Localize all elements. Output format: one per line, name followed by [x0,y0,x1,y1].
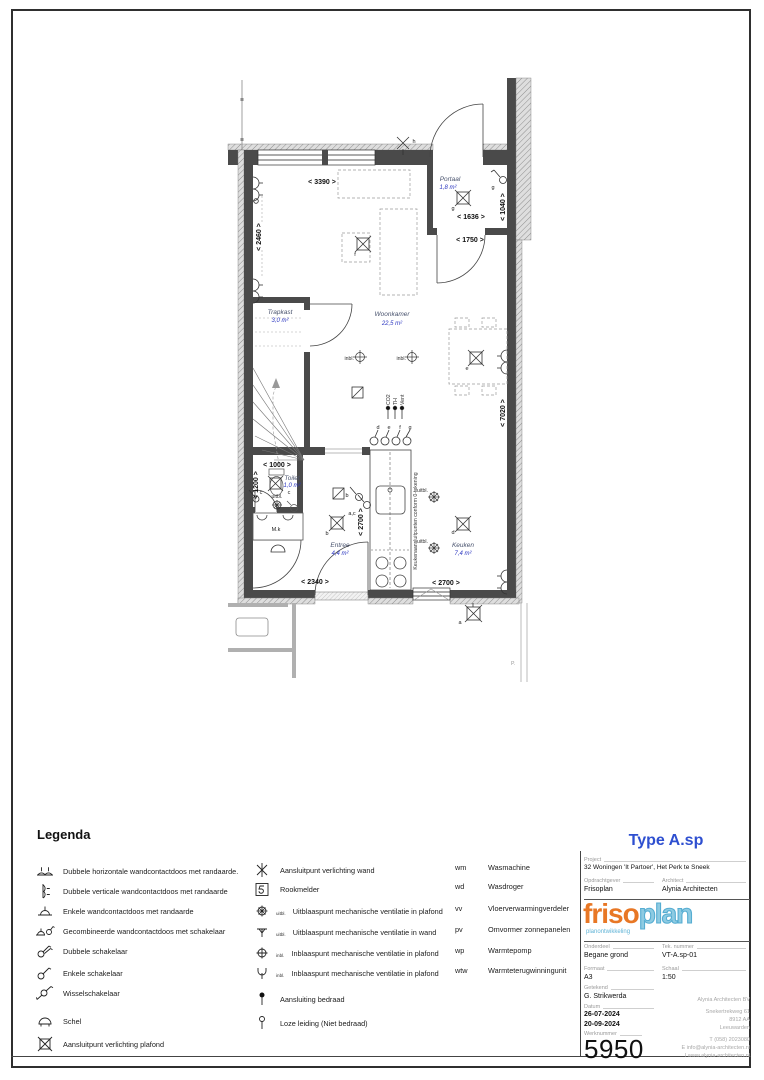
chair [455,386,469,395]
legend-row: wtwWarmteterugwinningunit [455,966,595,975]
dim-counter-h: < 2700 > [358,508,365,536]
room-area-keuken: 7,4 m² [454,551,472,557]
chair [482,318,496,327]
letter-g: g [491,185,494,191]
uitbl-icon [428,491,440,503]
schaal-value: 1:50 [662,974,676,981]
wall-light-icon [251,862,273,878]
label-co2: CO2 [386,394,392,405]
teknr-value: VT-A.sp-01 [662,952,697,959]
chair [482,386,496,395]
logo-tagline: planontwikkeling [586,929,630,935]
letter-e: e [387,425,390,431]
frisoplan-logo: frisoplan [583,900,692,928]
datum-value-1: 26-07-2024 [584,1011,620,1018]
room-name-entree: Entree [330,542,350,549]
legend-row: Enkele wandcontactdoos met randaarde [34,903,248,919]
room-area-toilet: 1,0 m² [283,483,301,489]
double-switch-icon [34,943,56,959]
label-vent: Vent [400,394,406,405]
label-uitbl: uitbl. [272,494,283,500]
letter-b: b [325,531,328,537]
inblaaspunt-plafond-icon [251,945,273,961]
double-vertical-socket-icon [34,883,56,899]
stairs [253,318,304,464]
drawing-sheet: Portaal 1,8 m² Woonkamer 22,5 m² Trapkas… [0,0,764,1080]
single-switch-icon [34,965,56,981]
architect-label: Architect [662,878,748,884]
legend-row: Schel [34,1013,248,1029]
client-value: Frisoplan [584,886,613,893]
exterior-walls [228,78,531,682]
schaal-label: Schaal [662,966,748,972]
room-name-toilet: Toilet [284,475,300,482]
dim-portaal-w: < 1636 > [457,214,485,221]
room-area-trapkast: 3,0 m² [271,318,289,324]
light-a-exterior-icon [465,603,482,622]
legend-row: wmWasmachine [455,863,595,872]
light-b-icon [329,515,345,531]
address-street: Snekertrekweg 61 [640,1009,750,1017]
legend-row: Aansluitpunt verlichting plafond [34,1036,248,1052]
legend-row: Wisselschakelaar [34,985,248,1001]
room-area-portaal: 1,8 m² [439,185,457,191]
legend-row: inbl. Inblaaspunt mechanische ventilatie… [251,945,451,961]
letter-d: d [451,530,454,536]
double-horizontal-socket-icon [34,863,56,879]
letter-g: g [451,206,454,212]
datum-value-2: 20-09-2024 [584,1021,620,1028]
loze-leiding-row [370,430,411,445]
legend-row: Gecombineerde wandcontactdoos met schake… [34,923,248,939]
formaat-label: Formaat [584,966,656,972]
dim-woonkamer-window-h: < 2460 > [256,223,263,251]
legend-row: Dubbele schakelaar [34,943,248,959]
inblaaspunt-wtw-icon [251,965,273,981]
legend-row: Dubbele verticale wandcontactdoos met ra… [34,883,248,899]
room-name-woonkamer: Woonkamer [374,311,410,318]
light-f-icon [355,236,371,252]
doorbell-icon [271,545,285,552]
label-inbl: inbl. [396,356,406,362]
titleblock-divider [580,851,581,1057]
thermostat-icon [352,387,363,398]
legend-row: Dubbele horizontale wandcontactdoos met … [34,863,248,879]
letter-ac: a,c [348,511,356,517]
room-name-keuken: Keuken [452,542,474,549]
legend-row: wdWasdroger [455,882,595,891]
formaat-value: A3 [584,974,593,981]
letter-f: f [399,425,401,431]
address-city: Leeuwarden [640,1025,750,1033]
legend-row: Aansluitpunt verlichting wand [251,862,451,878]
titleblock-rule [584,941,750,942]
corner-mark: P. [511,661,515,667]
dim-entree-w: < 2340 > [301,579,329,586]
address-email: E info@alynia-architecten.nl [640,1045,750,1053]
socket-icon [253,177,263,201]
address-zip: 8912 AA [640,1017,750,1025]
dim-depth: < 7020 > [500,399,507,427]
label-inbl: inbl. [344,356,354,362]
light-c-icon [268,476,283,491]
thermostat-icon [333,488,344,499]
kitchen-counter [370,450,411,590]
two-way-switch-icon [34,985,56,1001]
letter-e: e [465,366,468,372]
address-name: Alynia Architecten BV [640,997,750,1005]
dim-keuken-w: < 2700 > [432,580,460,587]
wired-point-icon [251,991,273,1007]
label-uitbl: uitbl. [417,488,428,494]
letter-c: c [260,490,263,496]
neighbor-outline [228,603,296,678]
legend-row: Loze leiding (Niet bedraad) [251,1015,451,1031]
address-phone: T (058) 2023080 [640,1037,750,1045]
dim-woonkamer-w: < 3390 > [308,179,336,186]
sofa-top [338,170,410,198]
address-web: I www.alynia-architecten.nl [640,1053,750,1061]
legend-row: Enkele schakelaar [34,965,248,981]
light-e-icon [468,350,484,366]
logo-plan: plan [639,898,693,929]
onderdeel-label: Onderdeel [584,944,656,950]
ceiling-light-icon [34,1036,56,1052]
letter-a: a [458,620,462,626]
kitchen-note: Keukenaansluitpunten conform 0-tekening [413,472,419,569]
uitbl-icon [428,542,440,554]
empty-conduit-icon [251,1015,273,1031]
logo-friso: friso [583,898,639,929]
legend-row: pvOmvormer zonnepanelen [455,925,595,934]
combined-socket-switch-icon [34,923,56,939]
legend-row: vvVloerverwarmingverdeler [455,904,595,913]
single-socket-icon [34,903,56,919]
werknummer-value: 5950 [584,1034,644,1065]
room-name-portaal: Portaal [440,176,461,183]
uitblaaspunt-plafond-icon [251,903,273,919]
bell-icon [34,1013,56,1029]
legend-row: Rookmelder [251,881,451,897]
legend-row: inbl. Inblaaspunt mechanische ventilatie… [251,965,451,981]
inbl-icon [405,350,419,364]
project-value: 32 Woningen 'It Partoer', Het Perk te Sn… [584,864,750,871]
drawing-type-title: Type A.sp [580,832,752,850]
uitblaaspunt-wand-icon [251,924,273,940]
legend-title: Legenda [37,827,90,842]
room-area-entree: 4,4 m² [331,551,349,557]
light-g-icon [455,190,471,206]
dim-hal-w: < 1750 > [456,237,484,244]
light-d-icon [455,516,471,532]
wc-tank [269,469,284,475]
socket-icon [497,350,507,374]
floor-plan: Portaal 1,8 m² Woonkamer 22,5 m² Trapkas… [0,0,764,700]
letter-c: c [288,490,291,496]
smoke-detector-icon [251,881,273,897]
dim-toilet-w: < 1000 > [263,462,291,469]
room-name-trapkast: Trapkast [268,309,294,316]
chair [455,318,469,327]
room-area-woonkamer: 22,5 m² [381,321,403,327]
room-name-meterkast: M.k [272,527,281,533]
inbl-icon [353,350,367,364]
letter-d: d [376,425,379,431]
teknr-label: Tek. nummer [662,944,748,950]
sofa-side [380,209,417,295]
switch-icon [491,170,507,184]
letter-b: b [345,493,348,499]
co2-th-vent-points [386,406,404,419]
letter-g: g [408,425,411,431]
project-label: Project [584,857,748,863]
legend-row: Aansluiting bedraad [251,991,451,1007]
onderdeel-value: Begane grond [584,952,628,959]
switch-icon [358,495,371,509]
letter-h: h [412,139,415,145]
architect-value: Alynia Architecten [662,886,718,893]
legend-row: wpWarmtepomp [455,946,595,955]
legend-row: uitbl. Uitblaaspunt mechanische ventilat… [251,924,451,940]
getekend-label: Getekend [584,985,656,991]
legend-row: uitbl. Uitblaaspunt mechanische ventilat… [251,903,451,919]
dim-portaal-h: < 1040 > [500,193,507,221]
client-label: Opdrachtgever [584,878,656,884]
label-th: TH [393,398,399,405]
letter-f: f [354,252,356,258]
getekend-value: G. Strikwerda [584,993,626,1000]
architect-address: Alynia Architecten BV Snekertrekweg 61 8… [640,997,750,1061]
label-uitbl: uitbl. [417,539,428,545]
